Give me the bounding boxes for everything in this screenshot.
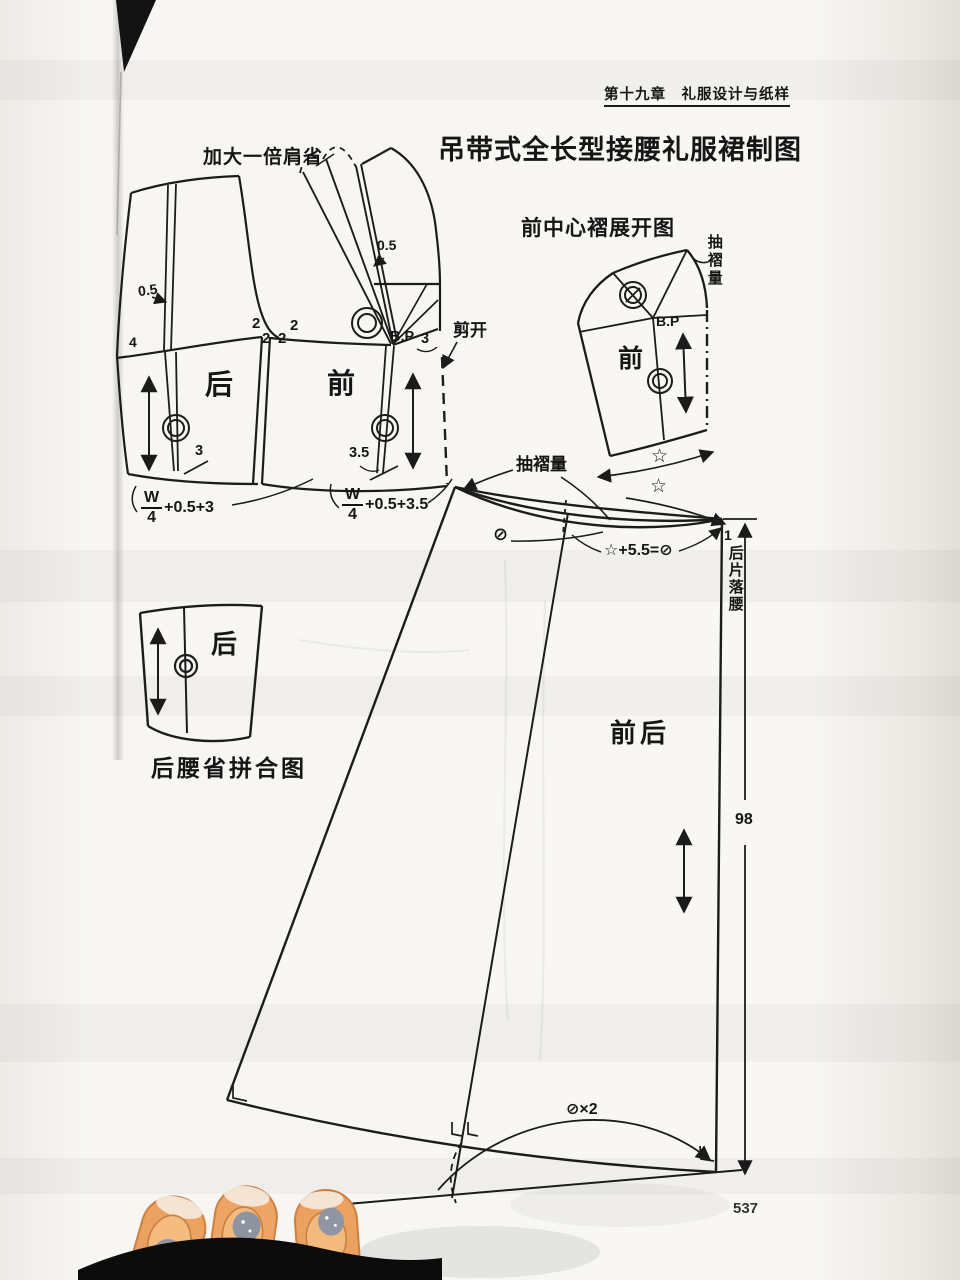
hem-measure-arc: [438, 1120, 710, 1190]
skirt-waist-formula: ☆+5.5=⊘: [604, 543, 673, 560]
pleat-center-line: [653, 318, 664, 440]
back-shoulder-offset: 0.5: [137, 282, 158, 299]
skirt-middle-line: [452, 513, 568, 1198]
skirt-panel: [227, 470, 757, 1208]
front-waist-line: [270, 338, 391, 345]
bleed-through-ghost: [300, 560, 545, 1060]
formula-suffix: +0.5+3.5: [365, 497, 428, 514]
back-neck-value: 4: [129, 335, 137, 350]
skirt-hem-curve: [227, 1100, 716, 1172]
pleat-top-left-edge: [613, 250, 687, 273]
skirt-left-edge: [227, 487, 455, 1100]
merge-bottom-edge: [148, 726, 250, 741]
back-center-line: [117, 193, 131, 356]
back-05-leader: [152, 297, 166, 302]
back-bodice-label: 后: [205, 370, 233, 399]
front-shoulder-offset: 0.5: [377, 238, 396, 253]
front-shoulder-top: [362, 148, 391, 164]
pleat-armhole-curve: [687, 250, 707, 308]
merge-center-line: [184, 608, 187, 733]
back-shoulder-dart-left: [164, 185, 168, 350]
pleat-gather-label: 抽褶量: [706, 234, 722, 288]
fraction-numerator: W: [342, 487, 363, 506]
front-bodice-label: 前: [327, 369, 355, 398]
spread-value-4: 2: [290, 318, 298, 334]
circle-symbol: ⊘: [493, 525, 508, 544]
pleat-diagram-title: 前中心褶展开图: [521, 218, 675, 240]
grainline-arrow-icon: [683, 334, 686, 412]
merge-top-edge: [140, 605, 262, 613]
waist-formula-leader-right: [679, 528, 721, 551]
back-shoulder-dart-right: [171, 184, 176, 350]
spread-value-1: 2: [252, 316, 260, 332]
back-drop-value: 1: [724, 528, 732, 543]
hem-formula: ⊘×2: [563, 1102, 601, 1119]
spine-crease-line: [117, 72, 121, 235]
front-dart-value: 3.5: [349, 446, 369, 461]
star-upper: ☆: [651, 447, 668, 467]
back-waist-dart-left: [165, 352, 174, 471]
pleat-line-to-peak: [653, 250, 687, 318]
pleat-front-label: 前: [618, 346, 643, 372]
back-shoulder-line: [131, 176, 239, 193]
grommet-icon: [372, 415, 398, 441]
back-midriff-bottom: [128, 474, 258, 484]
right-angle-mark: [233, 1085, 247, 1101]
right-angle-mark: [468, 1122, 478, 1136]
skirt-gather-leader-left: [464, 470, 513, 489]
right-angle-mark: [452, 1122, 462, 1136]
page-title: 吊带式全长型接腰礼服裙制图: [438, 136, 802, 164]
back-armhole-curve: [239, 176, 279, 338]
scan-smudge: [510, 1183, 730, 1227]
back-midriff-left: [117, 356, 128, 474]
formula-suffix: +0.5+3: [164, 500, 214, 517]
side-3-leader: [417, 347, 437, 352]
front-waist-formula: W4+0.5+3.5: [342, 487, 428, 523]
skirt-panel-label: 前后: [610, 720, 670, 747]
back-midriff-side: [253, 337, 262, 484]
page-number: 537: [733, 1201, 758, 1217]
merge-right-edge: [250, 606, 262, 737]
skirt-right-edge: [716, 519, 722, 1172]
holding-fingers: [78, 1182, 730, 1280]
front-armhole-curve: [391, 148, 440, 284]
side-dart-value: 3: [421, 332, 429, 347]
merge-back-label: 后: [211, 631, 237, 658]
bp-label-bodice: B.P: [390, 330, 414, 345]
fraction-denominator: 4: [147, 509, 156, 526]
front-waist-leader-right: [428, 479, 452, 503]
fraction-numerator: W: [141, 490, 162, 509]
back-waist-dart-right: [176, 352, 178, 471]
book-page: 第十九章 礼服设计与纸样 吊带式全长型接腰礼服裙制图 加大一倍肩省 0.5 0.…: [0, 0, 960, 1280]
grommet-icon: [163, 415, 189, 441]
grommet-icon: [352, 308, 382, 338]
back-waist-line: [117, 337, 262, 358]
chapter-header: 第十九章 礼服设计与纸样: [604, 88, 790, 107]
skirt-length-value: 98: [732, 812, 756, 829]
merge-caption: 后腰省拼合图: [151, 756, 307, 780]
fraction-denominator: 4: [348, 506, 357, 523]
center-front-dashed: [442, 357, 447, 484]
pleat-line-left: [579, 318, 653, 332]
skirt-gather-label: 抽褶量: [516, 456, 567, 474]
spread-value-3: 2: [278, 331, 286, 347]
star-lower: ☆: [650, 477, 667, 497]
cut-open-label: 剪开: [453, 322, 487, 340]
book-corner-shadow: [116, 0, 156, 72]
dart-35-leader: [360, 466, 379, 471]
pleat-left-curve: [578, 273, 613, 323]
front-dart-leg-1: [303, 172, 391, 344]
front-midriff-side: [262, 337, 270, 484]
bp-label-pleat: B.P: [656, 314, 679, 329]
front-waist-leader-left: [330, 484, 339, 508]
pleat-left-edge: [578, 323, 610, 456]
circle-symbol-leader: [511, 532, 603, 541]
shoulder-dart-note: 加大一倍肩省: [203, 148, 323, 168]
back-dart-tick: [184, 461, 208, 474]
back-dart-merge-diagram: [140, 605, 262, 741]
merge-left-edge: [140, 613, 148, 726]
back-waist-leader-left: [132, 486, 137, 512]
back-dart-value: 3: [195, 444, 203, 459]
back-drop-label: 后片落腰: [727, 545, 743, 613]
spread-value-2: 2: [262, 331, 270, 347]
pattern-drawing: [0, 0, 960, 1280]
grommet-icon: [358, 314, 376, 332]
cut-open-arrow: [443, 342, 457, 368]
back-waist-formula: W4+0.5+3: [141, 490, 214, 526]
